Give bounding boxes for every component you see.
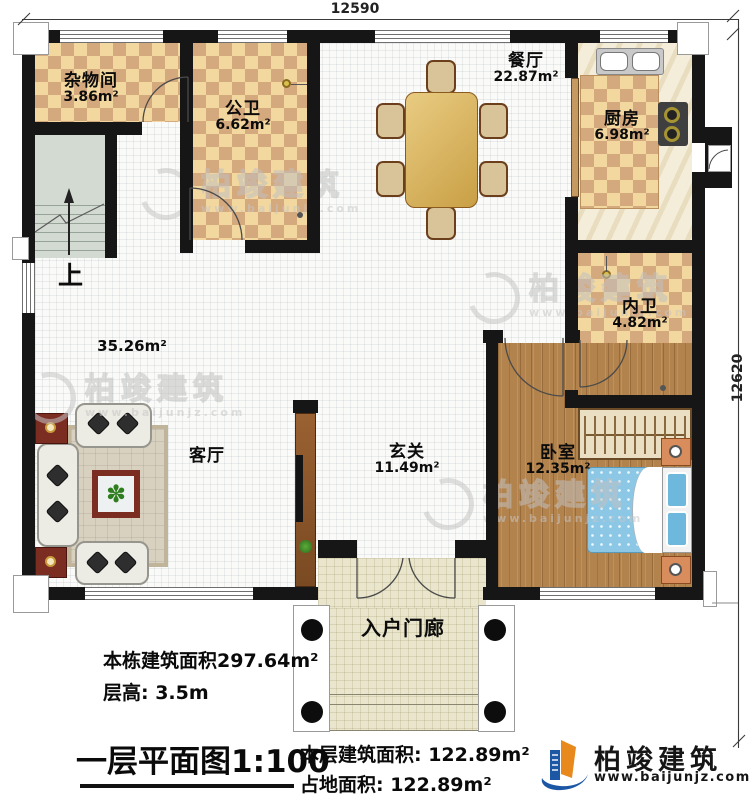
window-left-hall — [22, 263, 35, 313]
tv — [296, 455, 303, 522]
dining-chair — [479, 161, 508, 197]
wall-storage-bottom — [35, 122, 142, 135]
porch-floor-upper — [318, 558, 486, 610]
sink-basin — [632, 52, 660, 71]
pilaster — [12, 237, 29, 260]
porch-step-line — [328, 704, 478, 705]
wall-innerbath-bottom — [565, 395, 692, 408]
open-area-label: 35.26m² — [77, 338, 187, 354]
faucet-dot — [660, 385, 666, 391]
pilaster — [13, 22, 49, 55]
bed-pillow — [666, 511, 688, 547]
wall-storage-right — [180, 43, 193, 253]
window-living — [85, 587, 253, 600]
porch-step-line — [328, 694, 478, 695]
dim-tick — [733, 735, 745, 747]
room-label-kitchen: 厨房 6.98m² — [567, 110, 677, 143]
wall-stairs-right — [105, 122, 117, 258]
wall-outer-left — [22, 30, 35, 600]
cabinet-plant — [299, 540, 312, 553]
public-bath-floor — [193, 43, 307, 240]
dim-tick — [727, 28, 739, 40]
dining-chair — [376, 103, 405, 139]
title-underline — [80, 784, 294, 788]
wall-kitchen-bottom — [565, 240, 692, 253]
porch-column — [301, 619, 323, 641]
sofa-left — [37, 443, 79, 547]
porch-column — [301, 701, 323, 723]
dining-chair — [426, 206, 456, 240]
sink-basin — [600, 52, 628, 71]
pilaster — [13, 575, 49, 613]
floor-height: 层高: 3.5m — [103, 678, 209, 705]
wall-publicbath-right — [307, 43, 320, 253]
brand-logo-icon — [536, 734, 590, 794]
bed-pillow — [666, 472, 688, 508]
floor-plan: ✽ 柏竣建筑 www.baijunjz.com 柏竣建筑 www.baijunj… — [0, 0, 750, 803]
coffee-table: ✽ — [92, 470, 140, 518]
wall-bedroom-top-b — [565, 330, 580, 343]
building-total-area: 本栋建筑面积297.64m² — [103, 646, 318, 673]
window-bedroom — [540, 587, 655, 600]
room-label-public-bath: 公卫 6.62m² — [188, 100, 298, 133]
window-publicbath — [218, 30, 287, 43]
wall-entry-front-left — [318, 540, 357, 558]
porch-column — [484, 701, 506, 723]
window-dining — [375, 30, 510, 43]
dimension-right: 12620 — [730, 348, 746, 408]
plan-title: 一层平面图1:100 — [76, 736, 330, 781]
window-storage — [60, 30, 163, 43]
sofa-bottom — [75, 541, 149, 585]
room-label-inner-bath: 内卫 4.82m² — [585, 298, 695, 331]
nightstand-lamp — [669, 563, 682, 576]
lamp-line — [606, 256, 607, 272]
footprint-area: 占地面积: 122.89m² — [300, 770, 492, 797]
room-label-dining: 餐厅 22.87m² — [471, 52, 581, 85]
dining-chair — [376, 161, 405, 197]
dim-tick — [727, 10, 739, 22]
corner-table-knob — [45, 422, 56, 433]
wall-publicbath-bottom — [245, 240, 320, 253]
room-label-bedroom: 卧室 12.35m² — [503, 444, 613, 477]
brand-url: www.baijunjz.com — [594, 770, 750, 785]
bed-sheet-fold — [632, 467, 662, 553]
dining-table — [405, 92, 478, 208]
porch-column — [484, 619, 506, 641]
corner-table-knob — [45, 556, 56, 567]
room-label-foyer: 玄关 11.49m² — [352, 443, 462, 476]
pilaster — [703, 571, 717, 607]
stairs-up-label: 上 — [58, 256, 83, 292]
room-label-porch: 入户门廊 — [323, 618, 483, 640]
window-kitchen — [600, 30, 668, 43]
wall-lamp — [282, 79, 291, 88]
floor-area: 本层建筑面积: 122.89m² — [300, 740, 530, 767]
stair-treads — [35, 205, 105, 258]
lamp-line — [291, 84, 307, 85]
dining-chair — [479, 103, 508, 139]
dimension-top: 12590 — [315, 1, 395, 17]
faucet-dot — [297, 212, 303, 218]
pilaster — [677, 22, 709, 55]
sofa-top — [75, 403, 152, 448]
wall-bedroom-left — [486, 330, 498, 600]
room-label-living: 客厅 — [152, 447, 262, 465]
room-label-storage: 杂物间 3.86m² — [36, 72, 146, 105]
alcove-door-box — [708, 145, 731, 172]
dining-chair — [426, 60, 456, 94]
opening-kitchen-backdoor — [692, 143, 705, 172]
wall-tv-stub — [293, 400, 318, 413]
wall-kitchen-left-b — [565, 197, 578, 340]
nightstand-lamp — [669, 445, 682, 458]
